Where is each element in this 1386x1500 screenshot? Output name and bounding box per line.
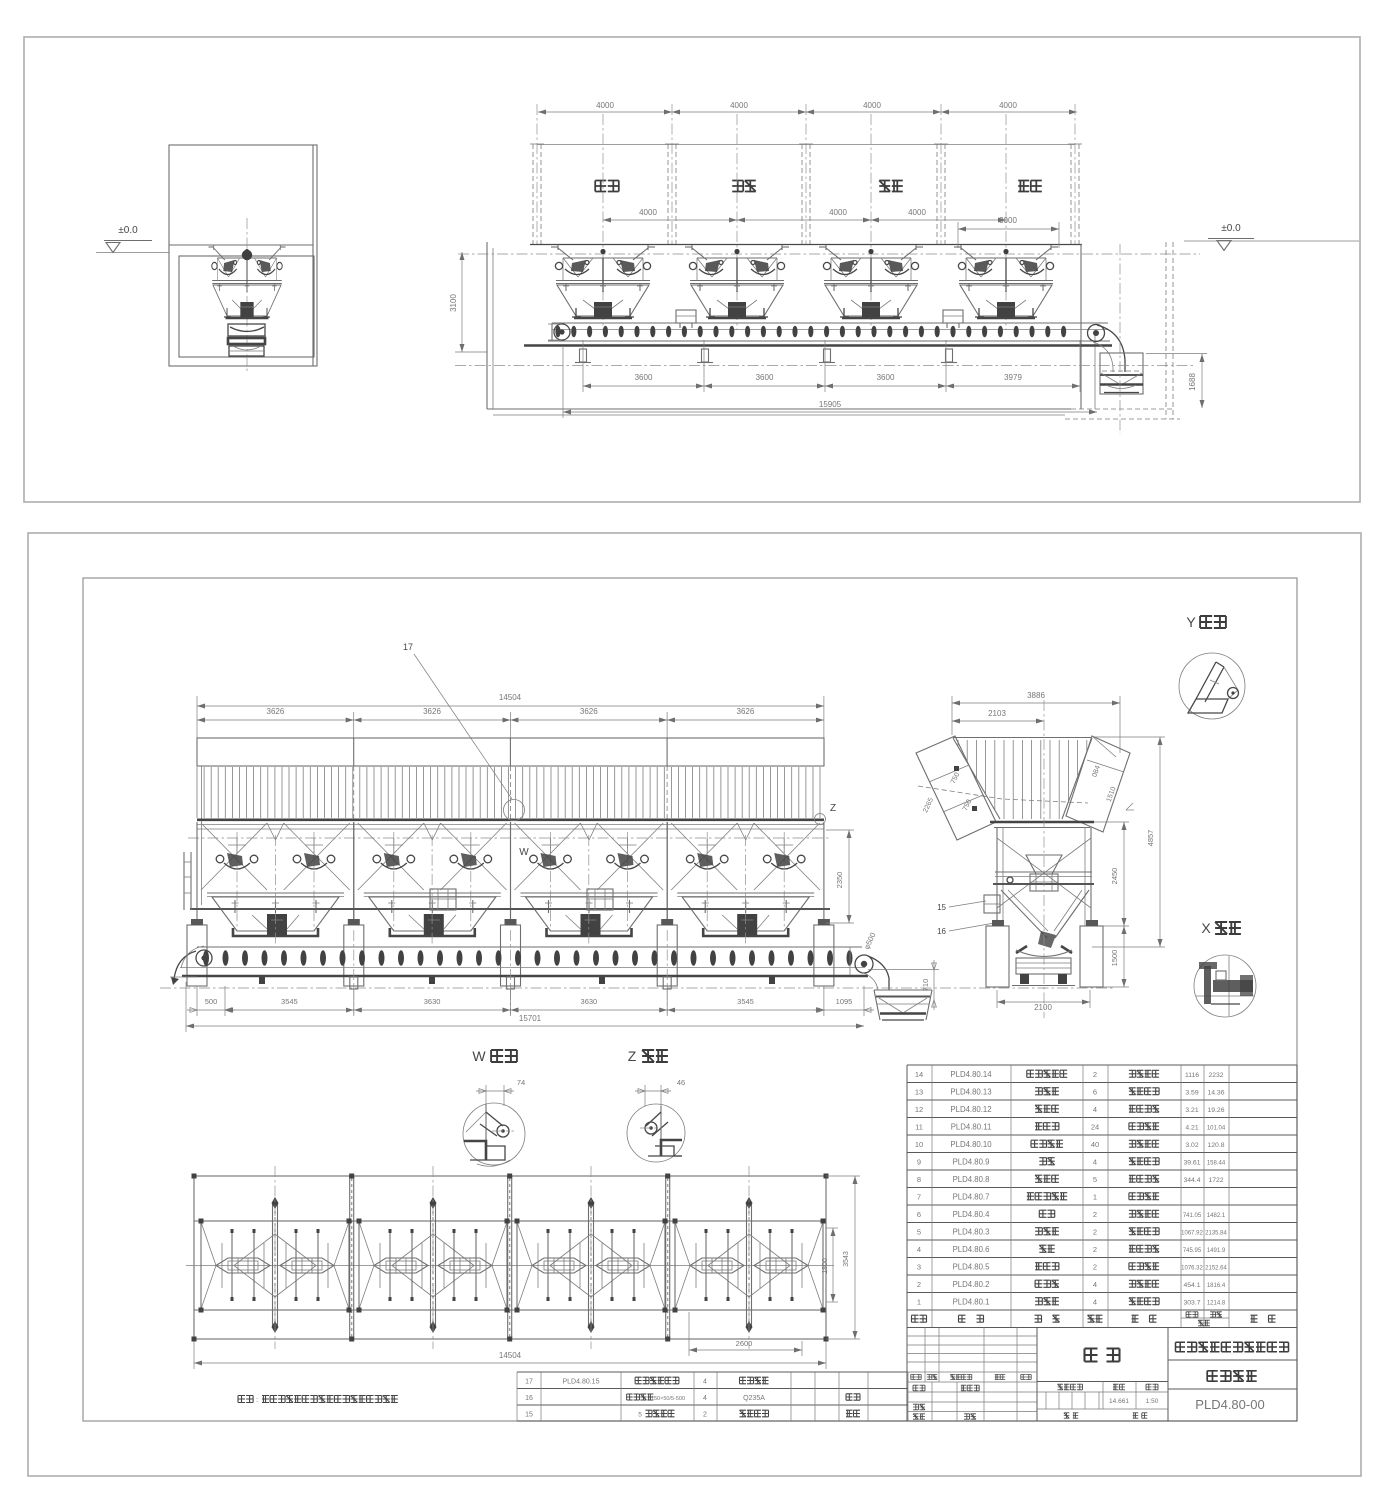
svg-text:39.61: 39.61 <box>1183 1160 1200 1167</box>
svg-text:3626: 3626 <box>423 707 441 716</box>
svg-text:7: 7 <box>917 1193 921 1202</box>
svg-text:6: 6 <box>917 1210 921 1219</box>
svg-text:2: 2 <box>1093 1070 1097 1079</box>
svg-text:4000: 4000 <box>863 101 881 110</box>
svg-text:±0.0: ±0.0 <box>118 225 138 236</box>
svg-text:4.21: 4.21 <box>1185 1125 1198 1132</box>
svg-text:3630: 3630 <box>424 997 441 1006</box>
svg-text:4: 4 <box>703 1379 707 1386</box>
svg-text:17: 17 <box>525 1379 533 1386</box>
svg-text:X: X <box>1201 920 1211 936</box>
svg-text:Q235A: Q235A <box>743 1395 765 1402</box>
svg-text:PLD4.80.3: PLD4.80.3 <box>953 1228 990 1237</box>
svg-text:2232: 2232 <box>1208 1072 1223 1079</box>
svg-text:2: 2 <box>1093 1263 1097 1272</box>
svg-text:500: 500 <box>205 997 218 1006</box>
svg-text:454.1: 454.1 <box>1183 1282 1200 1289</box>
svg-text:9: 9 <box>917 1158 921 1167</box>
svg-text:4000: 4000 <box>596 101 614 110</box>
svg-text:2450: 2450 <box>1110 868 1119 885</box>
svg-text:14: 14 <box>915 1070 923 1079</box>
svg-text:PLD4.80.7: PLD4.80.7 <box>953 1193 990 1202</box>
svg-text:3630: 3630 <box>581 997 598 1006</box>
svg-text:2152.64: 2152.64 <box>1205 1266 1227 1272</box>
svg-text:3.02: 3.02 <box>1185 1142 1198 1149</box>
svg-text:3626: 3626 <box>267 707 285 716</box>
svg-text:4: 4 <box>917 1245 921 1254</box>
svg-text:2: 2 <box>1093 1228 1097 1237</box>
svg-text:12: 12 <box>915 1105 923 1114</box>
svg-text:15: 15 <box>937 903 946 912</box>
svg-text:4: 4 <box>703 1395 707 1402</box>
svg-text:PLD4.80.11: PLD4.80.11 <box>951 1123 992 1132</box>
svg-text:±0.0: ±0.0 <box>1221 223 1241 234</box>
svg-text:15: 15 <box>525 1412 533 1419</box>
svg-text:3886: 3886 <box>1027 691 1045 700</box>
svg-text:2: 2 <box>917 1280 921 1289</box>
svg-text:16: 16 <box>937 927 946 936</box>
svg-text:4: 4 <box>1093 1105 1097 1114</box>
svg-text:14504: 14504 <box>499 1351 522 1360</box>
svg-text:1:50: 1:50 <box>1146 1398 1159 1405</box>
svg-text:1816.4: 1816.4 <box>1207 1283 1226 1289</box>
svg-text:1214.8: 1214.8 <box>1207 1301 1226 1307</box>
svg-text:3600: 3600 <box>756 373 774 382</box>
svg-text:710: 710 <box>921 979 930 992</box>
svg-text:15701: 15701 <box>519 1014 542 1023</box>
svg-text:11: 11 <box>915 1123 923 1132</box>
svg-text:Z: Z <box>830 803 836 814</box>
svg-text:74: 74 <box>517 1078 525 1087</box>
svg-text:Y: Y <box>1186 614 1196 630</box>
svg-text:PLD4.80.15: PLD4.80.15 <box>563 1379 600 1386</box>
svg-text:PLD4.80.1: PLD4.80.1 <box>953 1298 990 1307</box>
svg-text:2100: 2100 <box>1034 1003 1052 1012</box>
svg-text:3626: 3626 <box>737 707 755 716</box>
svg-text:2: 2 <box>1093 1210 1097 1219</box>
svg-text:4000: 4000 <box>730 101 748 110</box>
svg-text:PLD4.80.4: PLD4.80.4 <box>953 1210 991 1219</box>
svg-text:3979: 3979 <box>1004 373 1022 382</box>
svg-text:1095: 1095 <box>836 997 853 1006</box>
svg-text:40: 40 <box>1091 1140 1099 1149</box>
svg-text:1482.1: 1482.1 <box>1207 1213 1226 1219</box>
svg-text:3000: 3000 <box>999 216 1017 225</box>
svg-text:2103: 2103 <box>988 709 1006 718</box>
svg-text:4: 4 <box>1093 1158 1097 1167</box>
svg-text:4: 4 <box>1093 1298 1097 1307</box>
svg-text:4857: 4857 <box>1146 830 1155 847</box>
svg-text:1076.32: 1076.32 <box>1181 1266 1203 1272</box>
svg-text:3545: 3545 <box>737 997 754 1006</box>
svg-text:4000: 4000 <box>829 208 847 217</box>
svg-text:4000: 4000 <box>639 208 657 217</box>
svg-text:303.7: 303.7 <box>1183 1300 1200 1307</box>
svg-text:4000: 4000 <box>999 101 1017 110</box>
svg-text:1116: 1116 <box>1185 1072 1199 1079</box>
svg-text:2135.84: 2135.84 <box>1205 1231 1227 1237</box>
svg-text:PLD4.80.2: PLD4.80.2 <box>953 1280 990 1289</box>
svg-text:5: 5 <box>1093 1175 1097 1184</box>
svg-text:16: 16 <box>525 1395 533 1402</box>
svg-text:10: 10 <box>915 1140 923 1149</box>
svg-text:3545: 3545 <box>281 997 298 1006</box>
svg-text:19.26: 19.26 <box>1207 1107 1224 1114</box>
svg-text:PLD4.80.5: PLD4.80.5 <box>953 1263 991 1272</box>
svg-text:2600: 2600 <box>736 1339 753 1348</box>
svg-text:3.21: 3.21 <box>1185 1107 1198 1114</box>
svg-text:1067.92: 1067.92 <box>1181 1231 1203 1237</box>
svg-text:Z: Z <box>628 1048 637 1064</box>
svg-text:14.661: 14.661 <box>1109 1398 1129 1405</box>
svg-text:PLD4.80.12: PLD4.80.12 <box>950 1105 991 1114</box>
svg-text:14504: 14504 <box>499 693 522 702</box>
svg-text:PLD4.80.10: PLD4.80.10 <box>950 1140 992 1149</box>
svg-text:W: W <box>472 1048 486 1064</box>
svg-text:344.4: 344.4 <box>1183 1177 1200 1184</box>
svg-text:6: 6 <box>1093 1088 1097 1097</box>
svg-text:3626: 3626 <box>580 707 598 716</box>
svg-text::: : <box>256 1397 258 1404</box>
svg-text:PLD4.80.6: PLD4.80.6 <box>953 1245 990 1254</box>
svg-text:1491.9: 1491.9 <box>1207 1248 1226 1254</box>
svg-text:PLD4.80.8: PLD4.80.8 <box>953 1175 990 1184</box>
svg-text:1500: 1500 <box>1110 950 1119 967</box>
svg-text:1: 1 <box>917 1298 921 1307</box>
svg-text:3543: 3543 <box>843 1251 850 1267</box>
svg-text:4000: 4000 <box>908 208 926 217</box>
svg-text:24: 24 <box>1091 1123 1099 1132</box>
svg-text:3600: 3600 <box>877 373 895 382</box>
svg-text:8: 8 <box>917 1175 921 1184</box>
svg-text:17: 17 <box>403 642 413 652</box>
svg-text:741.05: 741.05 <box>1183 1213 1202 1219</box>
svg-text:3600: 3600 <box>635 373 653 382</box>
svg-text:13: 13 <box>915 1088 923 1097</box>
svg-text:1800: 1800 <box>822 1258 829 1274</box>
svg-text:1688: 1688 <box>1188 373 1197 391</box>
svg-text:PLD4.80.14: PLD4.80.14 <box>950 1070 992 1079</box>
svg-text:1: 1 <box>1093 1193 1097 1202</box>
svg-text:46: 46 <box>677 1078 685 1087</box>
svg-text:150×50/5-500: 150×50/5-500 <box>651 1396 685 1402</box>
svg-text:PLD4.80.9: PLD4.80.9 <box>953 1158 990 1167</box>
svg-text:PLD4.80.13: PLD4.80.13 <box>950 1088 991 1097</box>
svg-text:1722: 1722 <box>1208 1177 1223 1184</box>
svg-text:2: 2 <box>1093 1245 1097 1254</box>
svg-text:120.8: 120.8 <box>1207 1142 1224 1149</box>
svg-text:3100: 3100 <box>449 294 458 312</box>
svg-text:W: W <box>519 847 529 858</box>
svg-text:745.95: 745.95 <box>1183 1248 1202 1254</box>
svg-text:5: 5 <box>917 1228 921 1237</box>
svg-text:158.44: 158.44 <box>1207 1161 1226 1167</box>
svg-text:2350: 2350 <box>835 872 844 889</box>
svg-text:4: 4 <box>1093 1280 1097 1289</box>
svg-text:3: 3 <box>917 1263 921 1272</box>
svg-text:15905: 15905 <box>819 400 842 409</box>
svg-text:14.36: 14.36 <box>1207 1090 1224 1097</box>
svg-text:2: 2 <box>703 1412 707 1419</box>
svg-text:101.04: 101.04 <box>1207 1126 1226 1132</box>
svg-text:PLD4.80-00: PLD4.80-00 <box>1195 1397 1264 1412</box>
svg-text:5: 5 <box>638 1412 642 1419</box>
svg-text:3.59: 3.59 <box>1185 1090 1198 1097</box>
